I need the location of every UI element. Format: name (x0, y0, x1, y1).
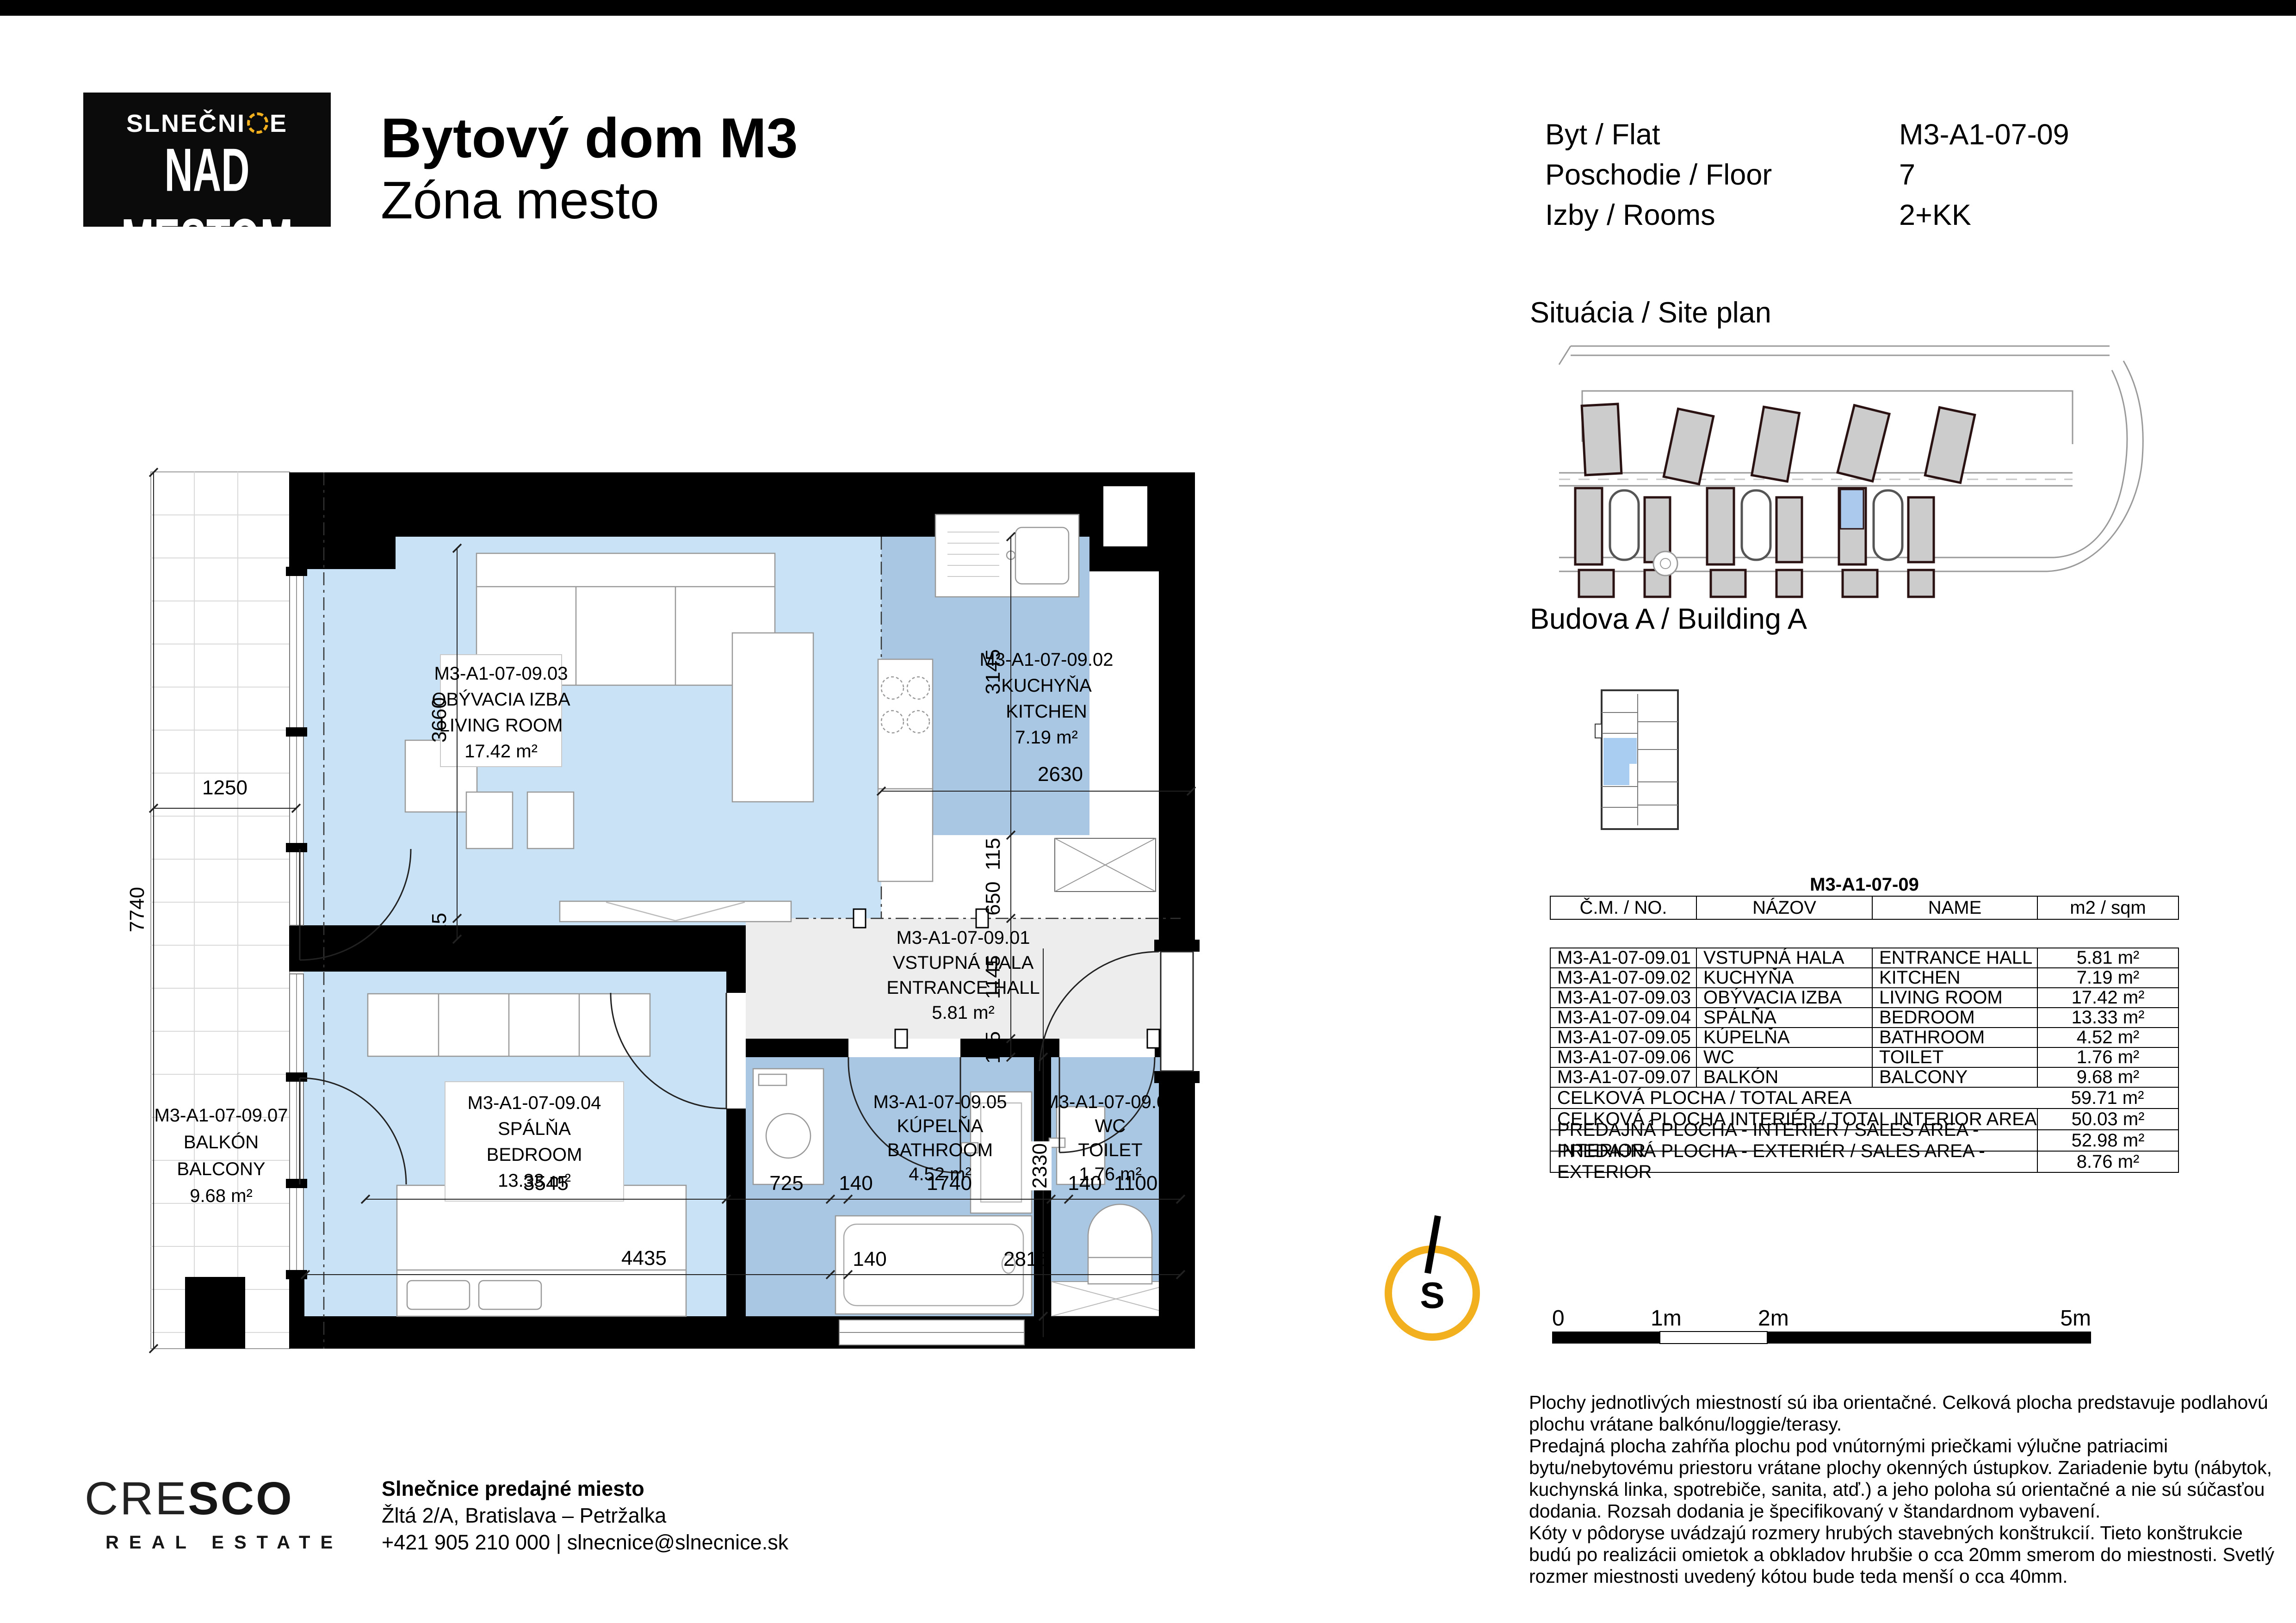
sun-circle-icon (247, 112, 268, 134)
logo-text-part1: SLNEČNI (126, 110, 246, 137)
floor-plan (149, 468, 1200, 1353)
disclaimer-line: budú po realizácii omietok a obkladov hr… (1529, 1544, 2274, 1566)
room-name-sk: WC (1043, 1114, 1177, 1138)
label-living-room: M3-A1-07-09.03 OBÝVACIA IZBA LIVING ROOM… (432, 661, 570, 764)
dim-140: 140 (853, 1248, 886, 1271)
site-highlighted-unit (1840, 489, 1863, 529)
cell: TOILET (1872, 1047, 2038, 1068)
cell: M3-A1-07-09.05 (1550, 1027, 1697, 1048)
flat-label: Byt / Flat (1545, 118, 1660, 151)
disclaimer-line: rozmer miestnosti uvedený kótou bude ted… (1529, 1566, 2274, 1587)
cell: ENTRANCE HALL (1872, 948, 2038, 968)
dim-140: 140 (1068, 1172, 1102, 1195)
cell: 4.52 m² (2037, 1027, 2179, 1048)
summary-label: PREDAJNÁ PLOCHA - EXTERIÉR / SALES AREA … (1550, 1151, 2038, 1173)
dim-2630: 2630 (1038, 763, 1083, 786)
room-area: 5.81 m² (886, 1000, 1040, 1025)
cell: VSTUPNÁ HALA (1696, 948, 1873, 968)
cell: BATHROOM (1872, 1027, 2038, 1048)
logo-line2: NAD MESTOM (99, 135, 314, 276)
summary-value: 52.98 m² (2037, 1129, 2179, 1152)
dim-725: 725 (769, 1172, 803, 1195)
dim-4435: 4435 (621, 1247, 667, 1270)
scale-bar (1552, 1332, 2091, 1344)
cell: 9.68 m² (2037, 1067, 2179, 1088)
brochure-page: SLNEČNIE NAD MESTOM Bytový dom M3 Zóna m… (0, 0, 2296, 1623)
scale-0: 0 (1552, 1306, 1565, 1331)
dim-1740: 1740 (927, 1172, 972, 1195)
site-plan-drawing (1559, 346, 2143, 597)
pillow (407, 1281, 470, 1309)
rooms-label: Izby / Rooms (1545, 198, 1715, 232)
building-heading: Budova A / Building A (1530, 602, 1807, 636)
cell: M3-A1-07-09.07 (1550, 1067, 1697, 1088)
scale-1m: 1m (1651, 1306, 1682, 1331)
label-entrance-hall: M3-A1-07-09.01 VSTUPNÁ HALA ENTRANCE HAL… (886, 925, 1040, 1025)
dim-1145: 1145 (982, 955, 1005, 999)
cell: BALCONY (1872, 1067, 2038, 1088)
tv-bench (560, 901, 791, 922)
room-name-en: LIVING ROOM (432, 712, 570, 738)
contact-phone-email: +421 905 210 000 | slnecnice@slnecnice.s… (382, 1530, 788, 1555)
room-id: M3-A1-07-09.03 (432, 661, 570, 687)
north-letter: S (1420, 1274, 1444, 1317)
table-title: M3-A1-07-09 (1550, 873, 2179, 896)
summary-value: 8.76 m² (2037, 1151, 2179, 1173)
cell: BALKÓN (1696, 1067, 1873, 1088)
balcony-area (151, 472, 290, 1349)
room-name-sk: SPÁLŇA (467, 1116, 601, 1142)
cell: 7.19 m² (2037, 967, 2179, 988)
room-name-sk: VSTUPNÁ HALA (886, 950, 1040, 975)
col-header-name: NAME (1872, 896, 2038, 920)
kitchen-sink (1015, 527, 1069, 584)
entrance-door-panel (1161, 952, 1193, 1071)
col-header-no: Č.M. / NO. (1550, 896, 1697, 920)
shaft-top (1103, 486, 1147, 546)
cell: SPÁLŇA (1696, 1007, 1873, 1028)
room-name-sk: OBÝVACIA IZBA (432, 687, 570, 712)
site-top-buildings (1582, 404, 1975, 484)
disclaimer-line: Predajná plocha zahŕňa plochu pod vnútor… (1529, 1435, 2274, 1457)
dim-3145: 3145 (982, 649, 1005, 694)
cell: WC (1696, 1047, 1873, 1068)
cresco-real-estate: REAL ESTATE (105, 1532, 343, 1553)
dim-115: 115 (982, 838, 1005, 870)
cell: M3-A1-07-09.03 (1550, 987, 1697, 1008)
cell: 5.81 m² (2037, 948, 2179, 968)
page-title: Bytový dom M3 (381, 105, 798, 170)
room-area: 9.68 m² (154, 1183, 288, 1209)
summary-label: CELKOVÁ PLOCHA / TOTAL AREA (1550, 1087, 2038, 1109)
dining-table (732, 633, 813, 802)
dim-115: 115 (428, 913, 451, 945)
cell: 1.76 m² (2037, 1047, 2179, 1068)
room-name-en: KITCHEN (979, 699, 1113, 725)
rooms-value: 2+KK (1899, 198, 1971, 232)
dim-115: 115 (982, 1031, 1005, 1064)
contact-address: Žltá 2/A, Bratislava – Petržalka (382, 1504, 666, 1528)
washing-machine (753, 1069, 823, 1184)
cell: KITCHEN (1872, 967, 2038, 988)
logo-text-part2: E (270, 110, 288, 137)
room-name-en: BATHROOM (873, 1138, 1007, 1162)
room-name-en: ENTRANCE HALL (886, 975, 1040, 1000)
cresco-light: CRE (85, 1473, 188, 1524)
roundabout (1653, 551, 1677, 576)
room-name-sk: BALKÓN (154, 1129, 288, 1156)
room-id: M3-A1-07-09.06 (1043, 1090, 1177, 1114)
scale-5m: 5m (2060, 1306, 2091, 1331)
cell: OBÝVACIA IZBA (1696, 987, 1873, 1008)
dim-140: 140 (839, 1172, 873, 1195)
label-balcony: M3-A1-07-09.07 BALKÓN BALCONY 9.68 m² (154, 1102, 288, 1209)
site-plan-heading: Situácia / Site plan (1530, 296, 1771, 329)
room-name-en: BALCONY (154, 1156, 288, 1183)
room-area: 17.42 m² (432, 738, 570, 764)
building-a-stairs (1595, 724, 1602, 738)
summary-value: 59.71 m² (2037, 1087, 2179, 1109)
cell: M3-A1-07-09.02 (1550, 967, 1697, 988)
pillow (479, 1281, 541, 1309)
site-bottom-clusters (1575, 488, 1934, 597)
room-id: M3-A1-07-09.05 (873, 1090, 1007, 1114)
top-bar (0, 0, 2296, 16)
cell: M3-A1-07-09.04 (1550, 1007, 1697, 1028)
room-id: M3-A1-07-09.07 (154, 1102, 288, 1129)
slnecnice-logo: SLNEČNIE NAD MESTOM (83, 93, 331, 227)
disclaimer-line: kuchynská linka, spotrebiče, sanita, atď… (1529, 1479, 2274, 1500)
room-name-sk: KÚPELŇA (873, 1114, 1007, 1138)
disclaimer-line: Plochy jednotlivých miestností sú iba or… (1529, 1392, 2274, 1413)
cresco-bold: SCO (188, 1473, 294, 1524)
floor-value: 7 (1899, 158, 1915, 192)
building-a-highlighted-flat (1603, 738, 1637, 764)
disclaimer: Plochy jednotlivých miestností sú iba or… (1529, 1392, 2274, 1587)
contact-name: Slnečnice predajné miesto (382, 1477, 644, 1501)
room-id: M3-A1-07-09.04 (467, 1090, 601, 1116)
room-id: M3-A1-07-09.01 (886, 925, 1040, 950)
dim-1100: 1100 (1114, 1172, 1158, 1195)
dim-7740: 7740 (126, 887, 149, 932)
room-name-en: BEDROOM (467, 1142, 601, 1168)
room-area: 7.19 m² (979, 725, 1113, 750)
cell: KUCHYŇA (1696, 967, 1873, 988)
graphics-layer (0, 0, 2296, 1623)
cell: 13.33 m² (2037, 1007, 2179, 1028)
logo-line1: SLNEČNIE (83, 109, 331, 138)
cell: BEDROOM (1872, 1007, 2038, 1028)
disclaimer-line: Kóty v pôdoryse uvádzajú rozmery hrubých… (1529, 1522, 2274, 1544)
chair (466, 792, 513, 849)
summary-value: 50.03 m² (2037, 1108, 2179, 1130)
disclaimer-line: dodania. Rozsah dodania je špecifikovaný… (1529, 1500, 2274, 1522)
disclaimer-line: bytu/nebytovému priestoru vrátane plochy… (1529, 1457, 2274, 1479)
col-header-nazov: NÁZOV (1696, 896, 1873, 920)
cell: M3-A1-07-09.01 (1550, 948, 1697, 968)
dim-2330: 2330 (1028, 1141, 1052, 1190)
dim-650: 650 (982, 881, 1005, 915)
dim-3660: 3660 (428, 697, 451, 743)
cell: LIVING ROOM (1872, 987, 2038, 1008)
scale-2m: 2m (1758, 1306, 1789, 1331)
room-name-en: TOILET (1043, 1138, 1177, 1162)
flat-value: M3-A1-07-09 (1899, 118, 2069, 151)
dim-3545: 3545 (523, 1172, 569, 1195)
col-header-sqm: m2 / sqm (2037, 896, 2179, 920)
kitchen-cabinet (878, 789, 933, 881)
cell: M3-A1-07-09.06 (1550, 1047, 1697, 1068)
toilet (1088, 1204, 1152, 1284)
cell: KÚPELŇA (1696, 1027, 1873, 1048)
building-a-drawing (1595, 690, 1678, 829)
floor-label: Poschodie / Floor (1545, 158, 1772, 192)
dim-2815: 2815 (1003, 1248, 1049, 1271)
disclaimer-line: plochu vrátane balkónu/loggie/terasy. (1529, 1413, 2274, 1435)
chair (527, 792, 574, 849)
dim-1250: 1250 (202, 776, 248, 799)
cell: 17.42 m² (2037, 987, 2179, 1008)
cresco-logo: CRESCO (85, 1472, 294, 1525)
page-subtitle: Zóna mesto (381, 170, 659, 231)
